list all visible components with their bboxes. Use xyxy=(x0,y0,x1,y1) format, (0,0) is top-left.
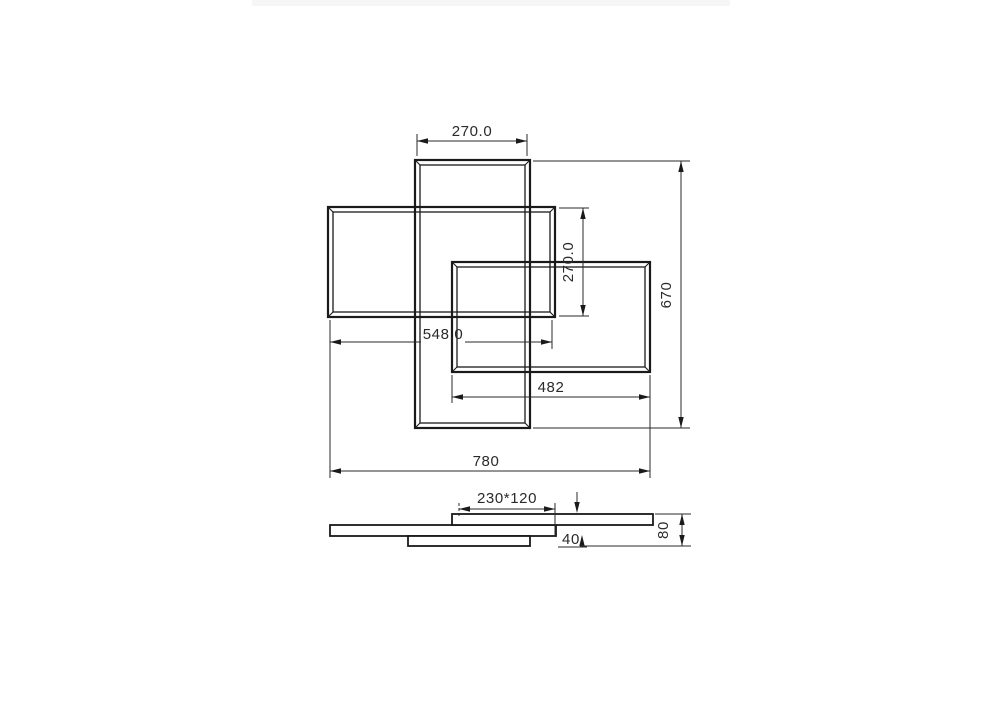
top-view: 270.0 270.0 670 xyxy=(328,123,690,478)
dim-frame-top-width: 270.0 xyxy=(417,123,527,156)
dim-overall-width: 780 xyxy=(330,453,650,474)
light-fixture-dimension-drawing: 270.0 270.0 670 xyxy=(0,0,1002,701)
dim-label-side-overall-height: 80 xyxy=(655,521,672,539)
dim-label-overall-height: 670 xyxy=(658,282,675,309)
side-bar-bottom xyxy=(408,536,530,546)
technical-drawing-page: 270.0 270.0 670 xyxy=(0,0,1002,701)
side-bar-middle xyxy=(330,525,556,536)
dim-label-frame-side-height: 270.0 xyxy=(560,242,577,283)
side-view: 230*120 40 80 xyxy=(330,490,691,548)
dim-label-frame-top-width: 270.0 xyxy=(452,123,493,140)
side-bar-top xyxy=(452,514,653,525)
top-edge-artifact xyxy=(252,0,730,6)
dim-label-overall-width: 780 xyxy=(473,453,500,470)
dim-label-canopy-size: 230*120 xyxy=(477,490,537,507)
frame-center-tall xyxy=(415,160,530,428)
dim-label-frame-thickness: 40 xyxy=(562,531,580,548)
dim-left-frame-width: 548.0 xyxy=(330,320,552,478)
dim-label-right-frame-width: 482 xyxy=(538,379,565,396)
dim-label-left-frame-width: 548.0 xyxy=(423,326,464,343)
